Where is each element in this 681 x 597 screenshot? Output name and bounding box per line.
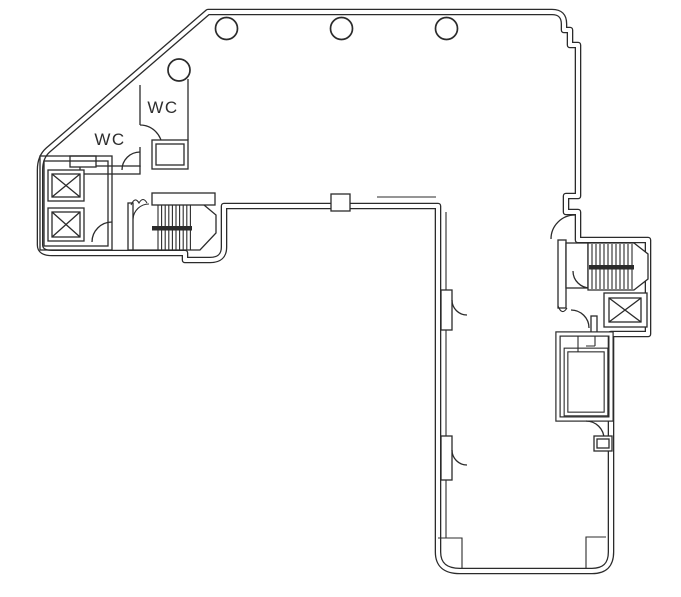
exterior-wall-outer-line: [40, 12, 648, 571]
wall-pillar: [331, 194, 350, 211]
column-icon: [168, 59, 190, 81]
wc-lower-label: WC: [94, 130, 125, 149]
column-icon: [436, 18, 458, 40]
exterior-walls: [40, 12, 648, 571]
stair-wall: [128, 203, 133, 250]
wc-upper-label: WC: [147, 98, 178, 117]
stair-mid-rail: [589, 265, 634, 270]
floor-plan: WC WC: [0, 0, 681, 597]
column-icon: [216, 18, 238, 40]
wall-thick-segment: [441, 290, 452, 330]
stair-mid-rail: [152, 226, 192, 231]
core-west-wall: [558, 240, 566, 308]
stair-landing: [152, 193, 215, 205]
column-icon: [331, 18, 353, 40]
floor-plan-drawing: WC WC: [0, 0, 681, 597]
wall-thick-segment: [441, 436, 452, 480]
door-jamb: [591, 316, 597, 334]
